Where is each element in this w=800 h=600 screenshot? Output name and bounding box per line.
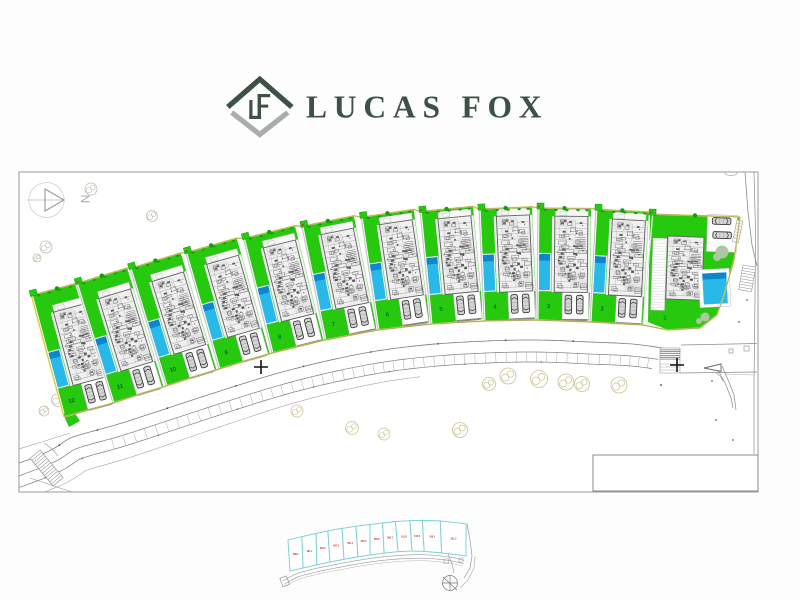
- svg-text:N: N: [78, 195, 92, 204]
- svg-text:503.5: 503.5: [361, 541, 367, 543]
- svg-text:LUCAS FOX: LUCAS FOX: [306, 90, 548, 125]
- svg-text:491.1: 491.1: [307, 550, 313, 553]
- svg-text:518.1: 518.1: [429, 537, 435, 539]
- svg-text:488.0: 488.0: [293, 553, 299, 556]
- svg-text:512.8: 512.8: [401, 536, 407, 538]
- svg-text:509.7: 509.7: [387, 538, 393, 540]
- svg-text:494.2: 494.2: [320, 547, 326, 550]
- svg-text:515.0: 515.0: [414, 536, 420, 538]
- svg-text:1: 1: [663, 315, 667, 322]
- svg-text:506.6: 506.6: [374, 539, 380, 541]
- svg-text:497.3: 497.3: [333, 544, 339, 547]
- svg-text:500.4: 500.4: [347, 542, 353, 545]
- svg-text:521.2: 521.2: [451, 539, 457, 541]
- svg-text:2: 2: [600, 307, 604, 313]
